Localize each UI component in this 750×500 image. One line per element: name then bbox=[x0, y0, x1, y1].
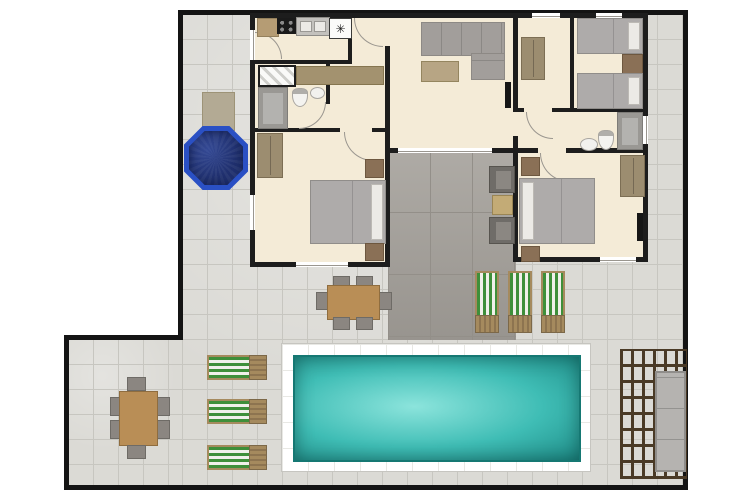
wardrobe-bedroom1 bbox=[257, 133, 283, 178]
wall-hall-horizontal bbox=[252, 60, 352, 64]
sun-lounger bbox=[508, 271, 532, 317]
window-dressing-top bbox=[532, 13, 560, 18]
sun-lounger bbox=[475, 271, 499, 317]
window-bedroom2-bottom bbox=[600, 257, 636, 262]
dining-chair bbox=[333, 317, 350, 330]
nightstand-bedroom2-top bbox=[521, 157, 540, 176]
sun-lounger bbox=[207, 399, 251, 424]
stove bbox=[277, 18, 296, 34]
pillow bbox=[628, 77, 640, 105]
tv-bedroom2 bbox=[637, 213, 643, 241]
dining-chair bbox=[127, 445, 146, 459]
pillow bbox=[522, 182, 534, 240]
dining-table-south bbox=[327, 285, 380, 320]
wall-bedroom2-top-a bbox=[513, 148, 538, 153]
kitchen-counter bbox=[257, 18, 279, 37]
courtyard-side-table bbox=[492, 195, 513, 215]
washing-machine bbox=[258, 87, 288, 129]
pillow bbox=[371, 184, 383, 240]
sofa-vertical bbox=[471, 53, 505, 80]
courtyard-armchair-2 bbox=[489, 217, 515, 244]
nightstand-bedroom1-top bbox=[365, 159, 384, 178]
coffee-table bbox=[421, 61, 459, 82]
wardrobe-bedroom2 bbox=[620, 155, 645, 197]
sofa-horizontal bbox=[421, 22, 505, 56]
tv-living-room bbox=[505, 82, 511, 108]
single-bed-2 bbox=[577, 73, 643, 109]
boundary-bottom bbox=[64, 485, 688, 490]
wardrobe-dressing bbox=[521, 37, 545, 80]
floor-plan: ✳ bbox=[0, 0, 750, 500]
double-bed-right bbox=[519, 178, 595, 244]
hot-tub bbox=[184, 126, 248, 190]
boundary-left-upper bbox=[178, 10, 183, 340]
fridge-freezer: ✳ bbox=[329, 18, 352, 39]
dining-chair bbox=[157, 420, 170, 439]
wall-bath2-top-a bbox=[517, 108, 524, 112]
kitchen-sink bbox=[296, 17, 330, 36]
hall-console bbox=[296, 66, 384, 85]
shower-hatched bbox=[258, 65, 296, 87]
single-bed-1 bbox=[577, 18, 643, 54]
window-bedroom1-left bbox=[250, 195, 255, 230]
courtyard-armchair-1 bbox=[489, 166, 515, 193]
dining-chair bbox=[378, 292, 392, 310]
nightstand-bedroom1-bottom bbox=[365, 243, 384, 261]
sun-lounger bbox=[207, 445, 251, 470]
shower-bathroom2 bbox=[617, 112, 643, 150]
sink-bathroom1 bbox=[310, 87, 325, 99]
dining-table-west bbox=[119, 391, 158, 446]
nightstand-twinroom bbox=[622, 54, 643, 74]
boundary-step bbox=[64, 335, 182, 340]
sun-lounger bbox=[207, 355, 251, 380]
dining-chair bbox=[157, 397, 170, 416]
window-bath2-right bbox=[643, 116, 648, 144]
pergola-sofa bbox=[655, 371, 686, 472]
sink-bathroom2 bbox=[580, 138, 598, 151]
wall-bedroom1-top-b bbox=[372, 128, 388, 132]
pillow bbox=[628, 22, 640, 50]
dining-chair bbox=[356, 317, 373, 330]
wall-twinroom-left bbox=[570, 18, 574, 112]
freezer-icon: ✳ bbox=[335, 23, 345, 35]
hot-tub-step bbox=[202, 92, 235, 131]
dining-chair bbox=[127, 377, 146, 391]
wall-courtyard-top-a bbox=[388, 148, 398, 153]
nightstand-bedroom2-bottom bbox=[521, 246, 540, 262]
wall-courtyard-top-b bbox=[492, 148, 515, 153]
sun-lounger bbox=[541, 271, 565, 317]
hot-tub-water bbox=[189, 131, 243, 185]
boundary-left-lower bbox=[64, 335, 69, 490]
pool-water bbox=[293, 355, 581, 462]
sliding-glass-door-courtyard bbox=[398, 148, 492, 153]
window-bedroom1-bottom bbox=[296, 262, 348, 267]
wall-rightwing-left-a bbox=[513, 13, 518, 112]
double-bed-left bbox=[310, 180, 386, 244]
